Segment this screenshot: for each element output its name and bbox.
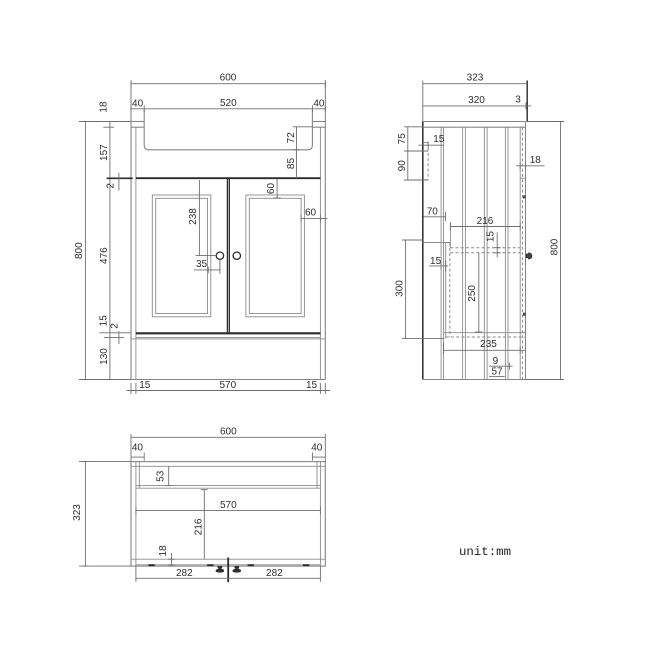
svg-text:2: 2 bbox=[105, 183, 116, 189]
svg-text:2: 2 bbox=[109, 323, 120, 329]
svg-text:40: 40 bbox=[132, 442, 144, 453]
svg-text:800: 800 bbox=[74, 242, 85, 259]
svg-text:15: 15 bbox=[430, 256, 442, 267]
svg-text:35: 35 bbox=[196, 259, 208, 270]
svg-text:600: 600 bbox=[220, 73, 237, 84]
svg-text:60: 60 bbox=[266, 183, 277, 195]
svg-text:235: 235 bbox=[480, 339, 497, 350]
svg-text:600: 600 bbox=[220, 426, 237, 437]
svg-text:320: 320 bbox=[468, 95, 485, 106]
svg-text:323: 323 bbox=[72, 504, 83, 521]
svg-text:85: 85 bbox=[286, 158, 297, 170]
svg-text:476: 476 bbox=[99, 247, 110, 264]
svg-text:282: 282 bbox=[176, 568, 193, 579]
svg-text:15: 15 bbox=[306, 380, 318, 391]
svg-text:unit:mm: unit:mm bbox=[459, 545, 511, 559]
svg-text:157: 157 bbox=[99, 144, 110, 161]
svg-text:18: 18 bbox=[530, 155, 542, 166]
svg-text:520: 520 bbox=[220, 98, 237, 109]
svg-text:282: 282 bbox=[266, 568, 283, 579]
svg-text:15: 15 bbox=[485, 231, 496, 243]
svg-text:40: 40 bbox=[132, 99, 144, 110]
svg-text:800: 800 bbox=[549, 238, 560, 255]
svg-text:570: 570 bbox=[219, 380, 236, 391]
svg-text:130: 130 bbox=[99, 348, 110, 365]
svg-text:57: 57 bbox=[491, 367, 503, 378]
svg-text:40: 40 bbox=[313, 99, 325, 110]
svg-text:53: 53 bbox=[155, 470, 166, 482]
svg-text:323: 323 bbox=[467, 73, 484, 84]
svg-text:75: 75 bbox=[397, 133, 408, 145]
svg-text:15: 15 bbox=[433, 134, 445, 145]
svg-text:300: 300 bbox=[395, 280, 406, 297]
svg-text:15: 15 bbox=[99, 315, 110, 327]
svg-text:60: 60 bbox=[305, 208, 317, 219]
svg-text:18: 18 bbox=[99, 101, 110, 113]
svg-text:216: 216 bbox=[193, 518, 204, 535]
svg-text:238: 238 bbox=[188, 208, 199, 225]
svg-text:216: 216 bbox=[477, 216, 494, 227]
svg-text:15: 15 bbox=[139, 380, 151, 391]
svg-text:3: 3 bbox=[515, 95, 521, 106]
svg-text:18: 18 bbox=[158, 545, 169, 557]
svg-text:70: 70 bbox=[427, 206, 439, 217]
svg-text:90: 90 bbox=[397, 160, 408, 172]
svg-text:250: 250 bbox=[467, 285, 478, 302]
svg-text:570: 570 bbox=[220, 500, 237, 511]
svg-text:40: 40 bbox=[311, 442, 323, 453]
svg-text:9: 9 bbox=[493, 356, 499, 367]
svg-text:72: 72 bbox=[286, 132, 297, 144]
